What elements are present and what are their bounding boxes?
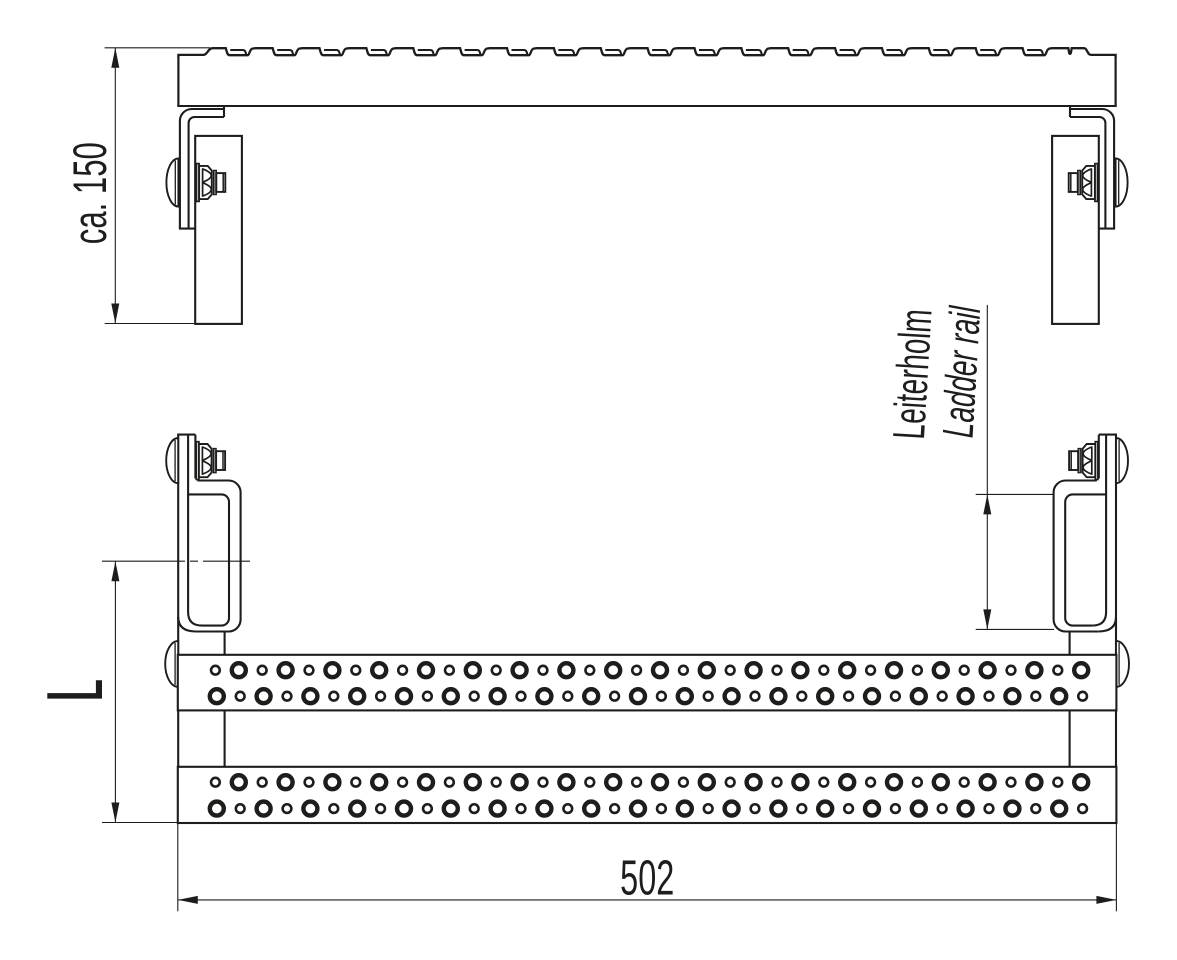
svg-text:ca. 150: ca. 150 [63,142,116,244]
svg-text:Ladder rail: Ladder rail [933,304,990,439]
svg-text:Leiterholm: Leiterholm [883,308,941,441]
svg-text:502: 502 [620,849,674,905]
